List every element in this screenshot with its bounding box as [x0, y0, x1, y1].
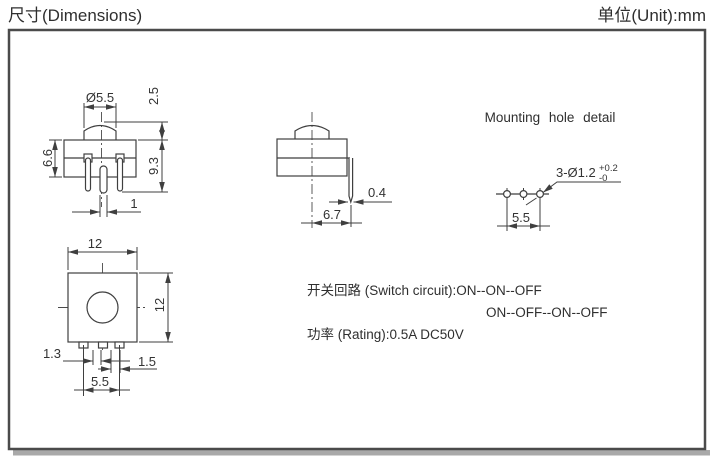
dim-pin-pitch: 5.5 [91, 374, 109, 389]
hole-spec-label: 3-Ø1.2 [556, 165, 596, 180]
dimension-sheet: 尺寸(Dimensions) 单位(Unit):mm Ø5.5 [0, 0, 715, 466]
dim-top-height: 12 [152, 298, 167, 312]
side-pin [349, 158, 353, 202]
dim-pin-width: 1 [130, 196, 137, 211]
dim-body-height: 6.6 [40, 149, 55, 167]
dim-pin-right: 1.5 [138, 354, 156, 369]
dim-pin-left: 1.3 [43, 346, 61, 361]
dim-total-height: 9.3 [146, 157, 161, 175]
dim-top-width: 12 [88, 236, 102, 251]
switch-circuit-line2: ON--OFF--ON--OFF [486, 305, 607, 320]
dim-pin-thickness: 0.4 [368, 185, 386, 200]
unit-label: 单位(Unit):mm [597, 6, 706, 25]
dim-pin-offset: 6.7 [323, 207, 341, 222]
dim-hole-pitch: 5.5 [512, 210, 530, 225]
rating-line: 功率 (Rating):0.5A DC50V [307, 326, 464, 342]
frame-shadow [13, 450, 710, 456]
top-button-circle [87, 292, 118, 323]
hole-tolerance-minus: -0 [599, 173, 607, 184]
sheet-title: 尺寸(Dimensions) [8, 6, 142, 25]
top-pins [79, 342, 124, 348]
dim-button-diameter: Ø5.5 [86, 90, 114, 105]
switch-circuit-line1: 开关回路 (Switch circuit):ON--ON--OFF [307, 283, 542, 298]
sheet-header: 尺寸(Dimensions) 单位(Unit):mm [8, 6, 706, 25]
mounting-detail-title: Mounting hole detail [485, 110, 616, 125]
dim-button-height: 2.5 [146, 87, 161, 105]
